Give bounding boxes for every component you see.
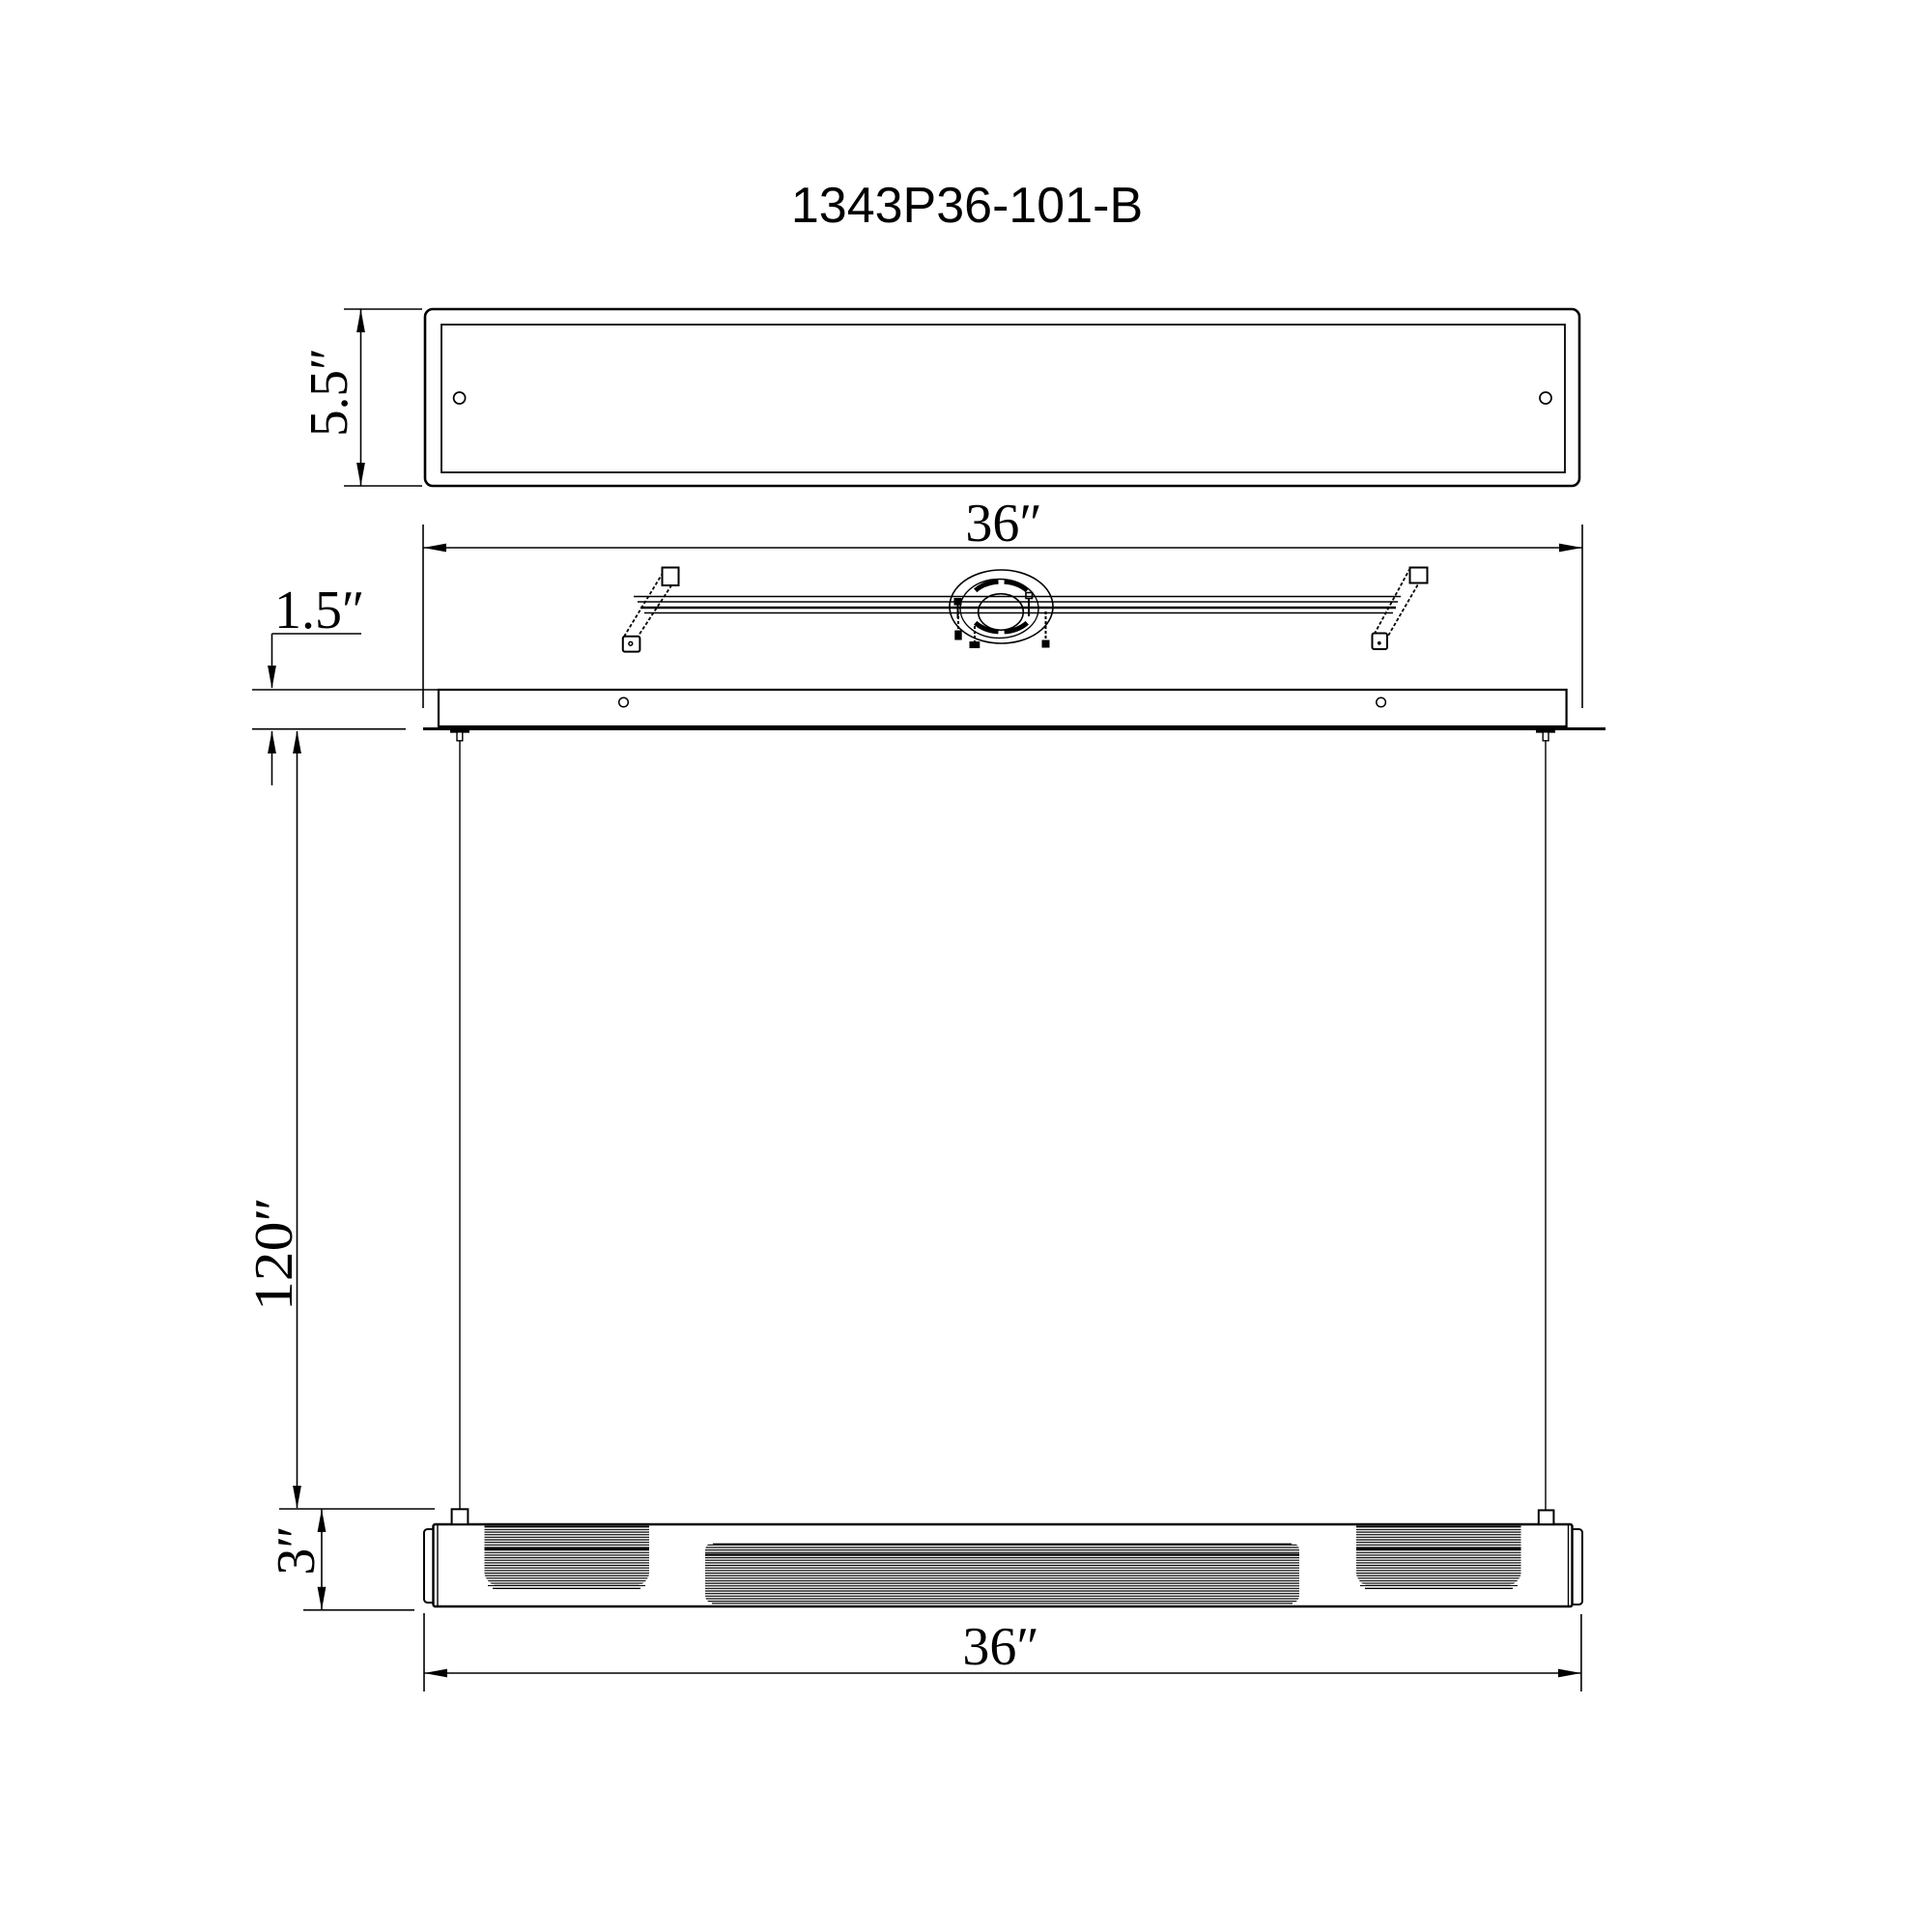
svg-text:36″: 36″ <box>965 494 1041 554</box>
svg-text:3″: 3″ <box>267 1525 327 1575</box>
svg-text:36″: 36″ <box>962 1617 1038 1677</box>
svg-text:120″: 120″ <box>244 1197 304 1311</box>
svg-text:1343P36-101-B: 1343P36-101-B <box>791 178 1143 234</box>
svg-text:1.5″: 1.5″ <box>274 581 364 640</box>
svg-text:5.5″: 5.5″ <box>299 348 359 437</box>
